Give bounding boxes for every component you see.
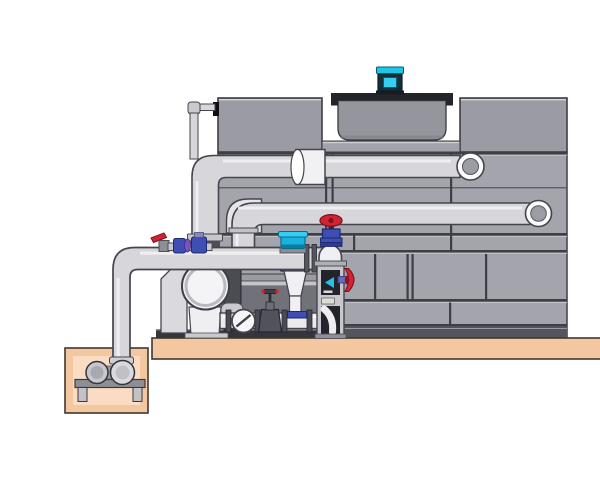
pedestal-foot — [185, 333, 228, 338]
blue-valve-body — [192, 237, 207, 253]
seam — [218, 187, 567, 188]
pipe-highlight — [196, 181, 199, 233]
diagram-canvas — [40, 16, 600, 466]
small-label-plate — [322, 298, 335, 304]
stand-leg — [78, 388, 87, 402]
valve-body — [323, 229, 341, 239]
wall-elbow-bore — [531, 206, 547, 222]
handle-tip — [276, 290, 279, 293]
collar-rim — [291, 150, 304, 185]
motor-window — [384, 78, 397, 88]
cowl-body — [338, 101, 446, 141]
motor-foot — [378, 87, 383, 91]
seam — [412, 254, 414, 299]
seam — [407, 254, 409, 299]
column-top-plate — [315, 261, 347, 266]
seam — [485, 254, 487, 299]
purple-disc — [185, 239, 191, 252]
box-top-highlight — [219, 99, 321, 100]
fan-cowl — [331, 93, 453, 140]
motor-foot — [397, 87, 402, 91]
handle-tip — [262, 290, 265, 293]
concrete-pad — [65, 338, 600, 413]
header-flange — [312, 245, 317, 273]
cowl-shadow — [341, 136, 443, 139]
tower-top-box-right — [460, 98, 567, 152]
ball-valve-assembly — [151, 233, 212, 254]
flange — [307, 310, 312, 332]
reducer-bottom-flange — [288, 312, 307, 319]
pump-stand-bar — [75, 380, 145, 388]
column-base — [315, 334, 346, 339]
valve-cap — [195, 233, 204, 238]
valve-flange-lower — [321, 243, 343, 247]
device-shadow — [281, 245, 305, 249]
gate-valve-body — [259, 310, 282, 333]
gate-valve-bonnet — [266, 302, 274, 310]
blue-valve-body — [174, 239, 186, 254]
tower-top-box-left — [218, 98, 322, 152]
flange — [282, 310, 287, 332]
valve-stem — [269, 294, 272, 303]
makeup-pipe-vertical — [190, 113, 198, 159]
deck-band-highlight — [323, 142, 459, 143]
device-lid — [279, 232, 308, 238]
handwheel-hub — [345, 276, 349, 285]
box-top-highlight — [461, 99, 566, 100]
seam — [218, 233, 567, 236]
wall-elbow-bore — [463, 159, 479, 175]
float-device — [279, 232, 308, 254]
deck-lip — [446, 101, 453, 106]
pad-slab — [152, 338, 600, 359]
valve-flange — [321, 238, 343, 243]
makeup-elbow — [188, 102, 200, 114]
panel-tick — [324, 291, 333, 294]
pipe-highlight — [223, 160, 451, 163]
riser-gate-valve — [320, 215, 342, 247]
motor-top-cap — [377, 67, 404, 74]
deck-lip — [331, 101, 338, 106]
seam — [353, 236, 355, 251]
instrument-column — [315, 261, 347, 339]
makeup-line — [188, 102, 219, 159]
casing-end-cap — [116, 366, 130, 380]
cooling-tower-illustration — [40, 16, 600, 466]
pump-pedestal — [189, 307, 221, 335]
seam-light — [218, 236, 567, 237]
seam — [449, 303, 451, 325]
drop-leg-flange — [229, 228, 258, 233]
pipe-highlight — [238, 207, 522, 210]
skid-side-plate — [161, 266, 187, 333]
stand-leg — [133, 388, 142, 402]
flange — [226, 310, 231, 332]
fan-motor — [376, 67, 404, 95]
seam — [374, 254, 376, 299]
handwheel-hub — [328, 218, 333, 223]
motor-end-cap — [91, 366, 104, 379]
pipe-highlight — [117, 278, 120, 358]
valve-handle — [263, 290, 277, 294]
